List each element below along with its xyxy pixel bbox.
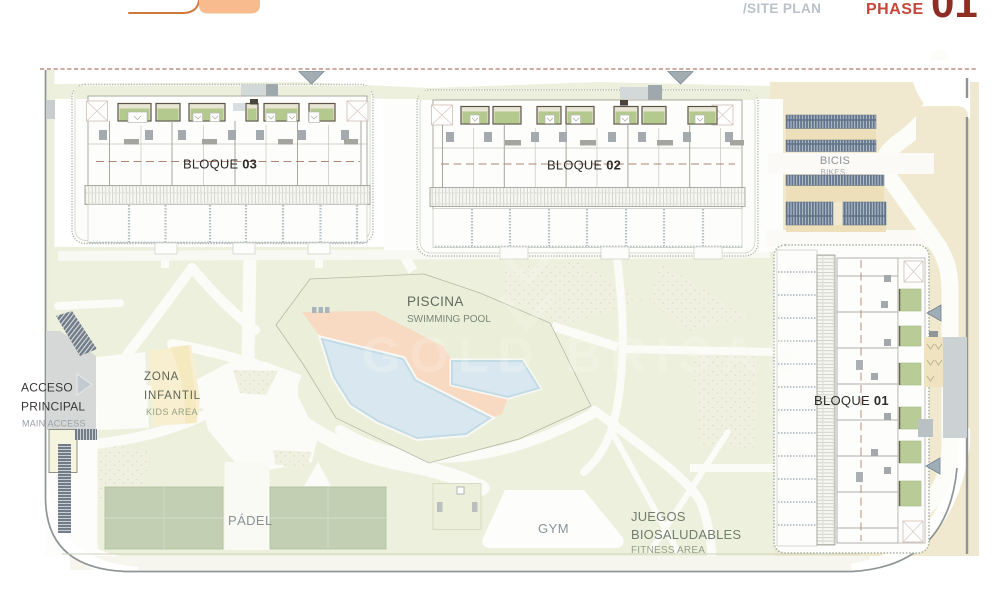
svg-text:PHASE: PHASE — [866, 1, 924, 18]
svg-text:BIKES: BIKES — [820, 168, 845, 177]
svg-text:BLOQUE 03: BLOQUE 03 — [183, 157, 257, 172]
svg-text:ACCESO: ACCESO — [21, 381, 73, 395]
svg-text:KIDS AREA: KIDS AREA — [146, 407, 198, 417]
svg-text:BIOSALUDABLES: BIOSALUDABLES — [631, 527, 741, 542]
svg-text:BLOQUE 01: BLOQUE 01 — [814, 393, 889, 408]
svg-text:/SITE PLAN: /SITE PLAN — [743, 1, 821, 16]
svg-text:BLOQUE 02: BLOQUE 02 — [547, 158, 621, 173]
svg-text:ZONA: ZONA — [144, 371, 179, 383]
svg-text:JUEGOS: JUEGOS — [631, 509, 686, 524]
svg-text:GYM: GYM — [538, 521, 569, 536]
svg-text:01: 01 — [931, 0, 978, 26]
svg-text:MAIN ACCESS: MAIN ACCESS — [22, 419, 86, 429]
svg-text:GOLD BRISAS: GOLD BRISAS — [362, 327, 808, 383]
svg-text:PISCINA: PISCINA — [407, 294, 464, 309]
svg-text:SWIMMING POOL: SWIMMING POOL — [407, 314, 491, 325]
svg-text:PRINCIPAL: PRINCIPAL — [21, 400, 85, 414]
svg-text:PÁDEL: PÁDEL — [228, 513, 273, 528]
svg-text:BICIS: BICIS — [820, 155, 850, 167]
svg-text:FITNESS AREA: FITNESS AREA — [631, 545, 705, 556]
svg-text:INFANTIL: INFANTIL — [144, 390, 201, 402]
